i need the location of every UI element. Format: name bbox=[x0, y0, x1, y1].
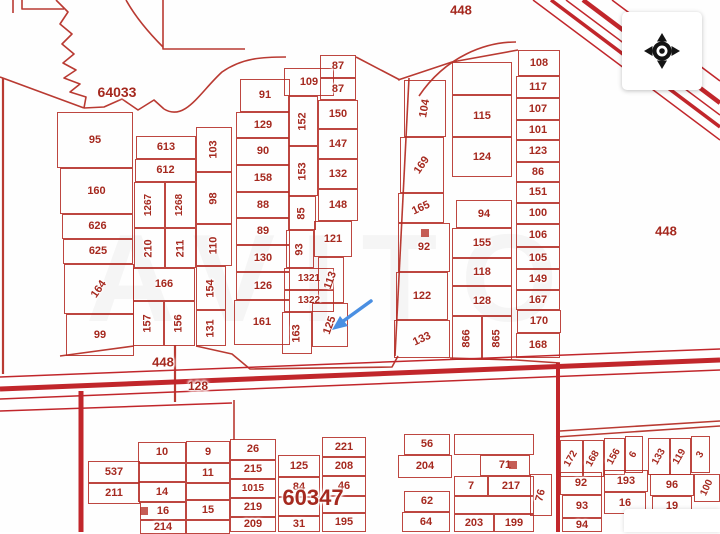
corner-overlay-box bbox=[624, 509, 720, 532]
map-canvas[interactable]: AVITO bbox=[0, 0, 720, 532]
pointer-arrow bbox=[0, 0, 720, 532]
compass-icon bbox=[643, 32, 681, 70]
compass-button[interactable] bbox=[622, 12, 702, 90]
